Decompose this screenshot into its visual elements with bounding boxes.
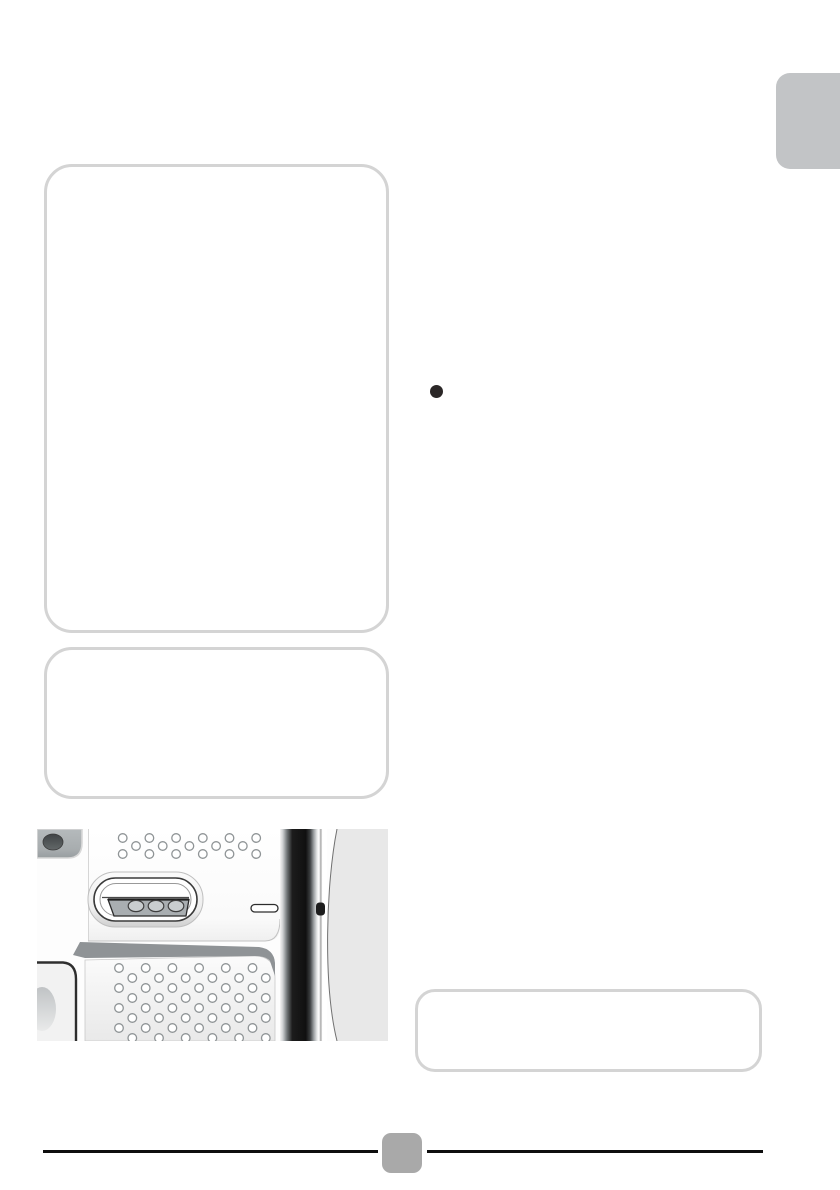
speaker-hole-icon [158, 842, 167, 851]
speaker-hole-icon [168, 964, 177, 973]
speaker-hole-icon [128, 1014, 137, 1023]
footer-rule-right [427, 1150, 763, 1153]
speaker-hole-icon [132, 842, 141, 851]
speaker-hole-icon [252, 850, 261, 859]
speaker-hole-icon [195, 1024, 204, 1033]
contact-bump-icon [128, 900, 144, 911]
speaker-hole-icon [155, 974, 164, 983]
speaker-hole-icon [262, 994, 271, 1003]
speaker-hole-icon [262, 1014, 271, 1023]
speaker-hole-icon [248, 984, 257, 993]
speaker-hole-icon [248, 964, 257, 973]
side-rail [280, 829, 327, 1041]
speaker-hole-icon [145, 850, 154, 859]
page-number-marker [382, 1133, 422, 1173]
callout-box-top-left [44, 164, 389, 633]
speaker-hole-icon [222, 964, 231, 973]
speaker-hole-icon [172, 834, 181, 843]
speaker-hole-icon [128, 994, 137, 1003]
speaker-hole-icon [115, 1024, 124, 1033]
speaker-hole-icon [141, 1024, 150, 1033]
speaker-hole-icon [195, 964, 204, 973]
contact-slot [88, 872, 203, 927]
speaker-hole-icon [168, 1004, 177, 1013]
callout-box-bottom-right [415, 989, 762, 1072]
speaker-hole-icon [181, 1014, 190, 1023]
speaker-hole-icon [252, 834, 261, 843]
speaker-hole-icon [208, 974, 217, 983]
speaker-hole-icon [155, 994, 164, 1003]
speaker-hole-icon [115, 1004, 124, 1013]
speaker-hole-icon [168, 1024, 177, 1033]
speaker-hole-icon [145, 834, 154, 843]
speaker-hole-icon [199, 834, 208, 843]
speaker-hole-icon [128, 1034, 137, 1041]
speaker-hole-icon [195, 1004, 204, 1013]
speaker-hole-icon [181, 1034, 190, 1041]
speaker-hole-icon [222, 1024, 231, 1033]
speaker-hole-icon [141, 984, 150, 993]
contact-bump-icon [168, 900, 184, 911]
bottom-panel [85, 956, 275, 1041]
speaker-hole-icon [141, 1004, 150, 1013]
right-surface [328, 829, 388, 1041]
camera-lens-icon [43, 834, 63, 850]
latch-notch [316, 903, 325, 916]
speaker-hole-icon [222, 1004, 231, 1013]
speaker-hole-icon [248, 1024, 257, 1033]
speaker-hole-icon [239, 842, 248, 851]
speaker-hole-icon [141, 964, 150, 973]
callout-box-mid-left [44, 647, 389, 799]
speaker-hole-icon [212, 842, 221, 851]
speaker-hole-icon [235, 1014, 244, 1023]
manual-page [0, 0, 840, 1190]
speaker-hole-icon [115, 984, 124, 993]
speaker-hole-icon [185, 842, 194, 851]
speaker-hole-icon [262, 974, 271, 983]
speaker-hole-icon [155, 1014, 164, 1023]
speaker-hole-icon [115, 964, 124, 973]
speaker-hole-icon [155, 1034, 164, 1041]
speaker-hole-icon [172, 850, 181, 859]
device-photo [37, 829, 388, 1041]
speaker-hole-icon [168, 984, 177, 993]
speaker-hole-icon [118, 834, 127, 843]
contact-bump-icon [148, 900, 164, 911]
speaker-hole-icon [208, 1014, 217, 1023]
indicator-slot [251, 905, 278, 913]
speaker-hole-icon [235, 994, 244, 1003]
bullet-point-icon [430, 385, 443, 398]
speaker-hole-icon [208, 1034, 217, 1041]
speaker-hole-icon [235, 974, 244, 983]
speaker-hole-icon [128, 974, 137, 983]
speaker-hole-icon [118, 850, 127, 859]
speaker-hole-icon [195, 984, 204, 993]
speaker-hole-icon [208, 994, 217, 1003]
speaker-hole-icon [235, 1034, 244, 1041]
footer-rule-left [43, 1150, 378, 1153]
speaker-hole-icon [222, 984, 231, 993]
speaker-hole-icon [262, 1034, 271, 1041]
speaker-hole-icon [199, 850, 208, 859]
speaker-hole-icon [225, 850, 234, 859]
speaker-hole-icon [181, 974, 190, 983]
section-tab [776, 73, 840, 169]
speaker-hole-icon [225, 834, 234, 843]
speaker-hole-icon [248, 1004, 257, 1013]
speaker-hole-icon [181, 994, 190, 1003]
